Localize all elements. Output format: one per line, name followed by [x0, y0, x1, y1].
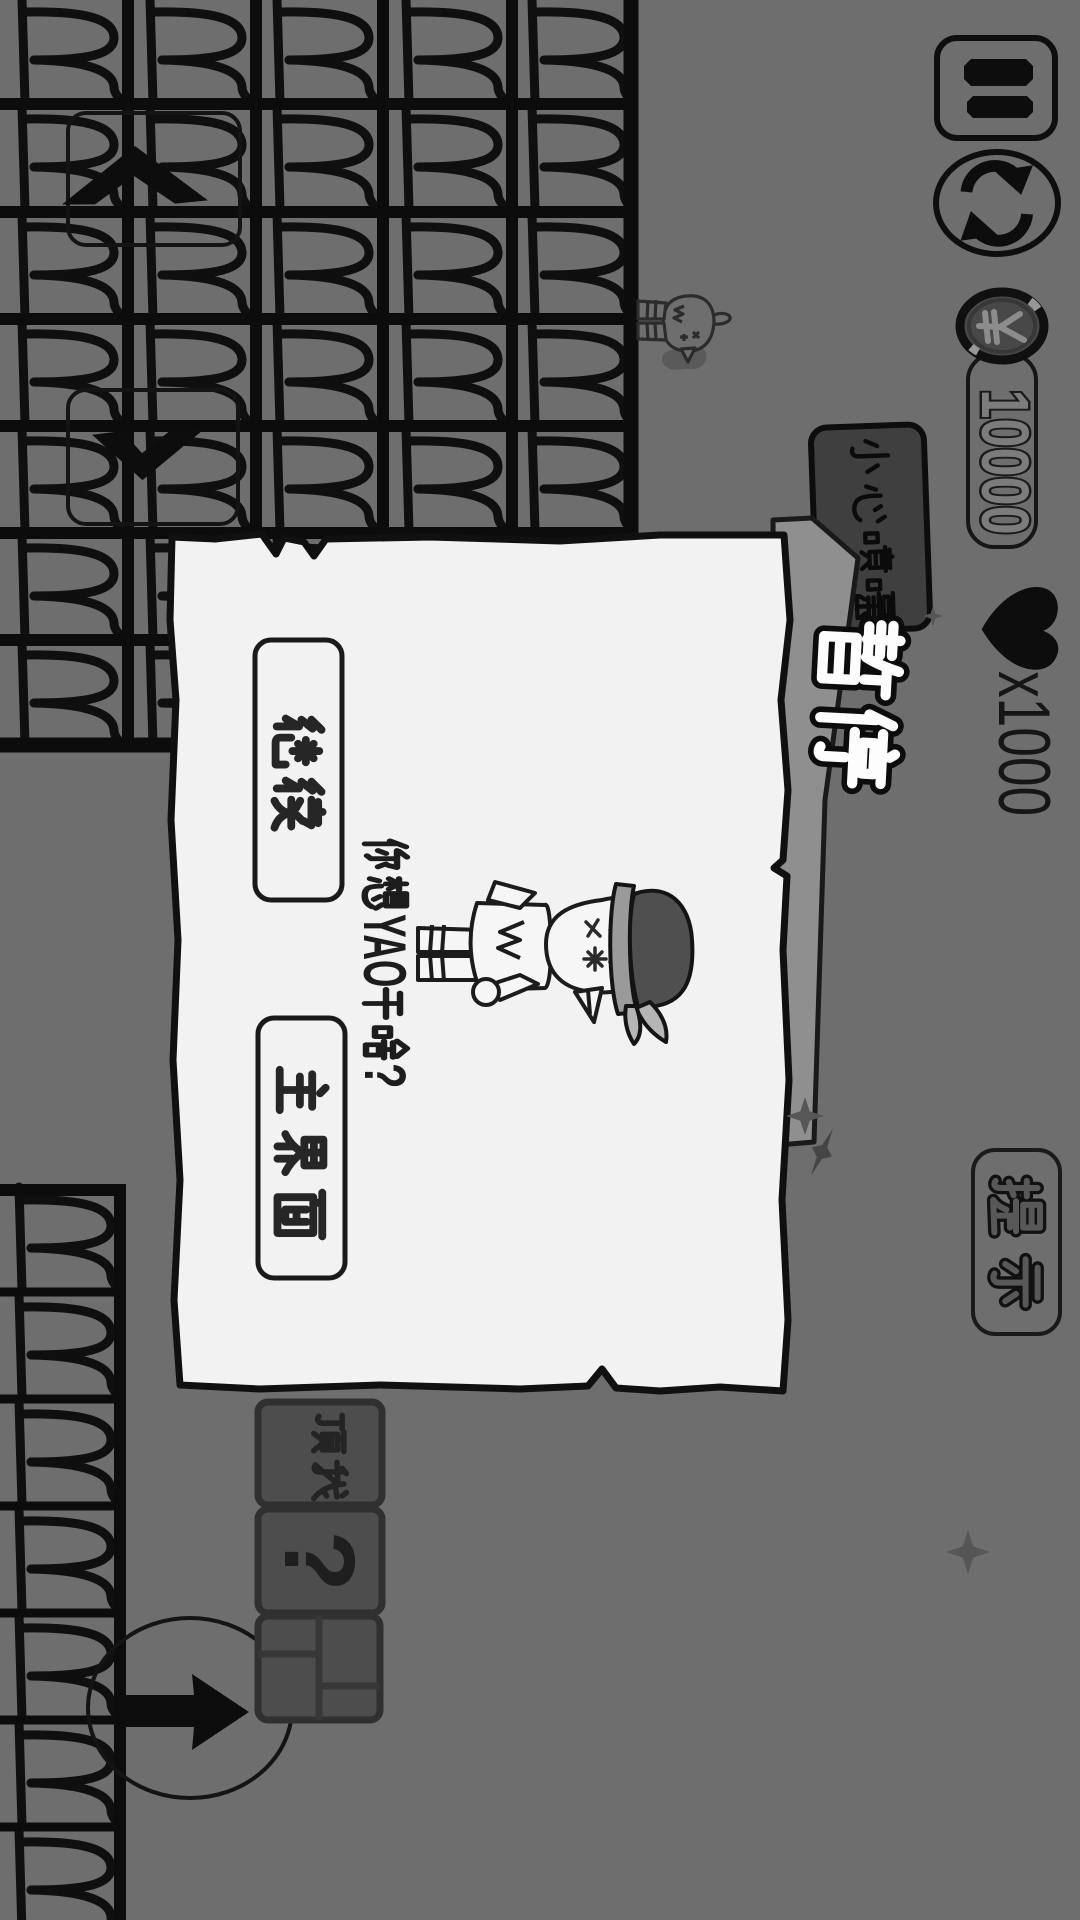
svg-text:10000: 10000: [968, 389, 1043, 534]
svg-text:YAO: YAO: [351, 914, 418, 987]
svg-text:?: ?: [352, 1063, 417, 1089]
svg-text:x1000: x1000: [983, 671, 1065, 816]
svg-text:?: ?: [263, 1530, 375, 1591]
